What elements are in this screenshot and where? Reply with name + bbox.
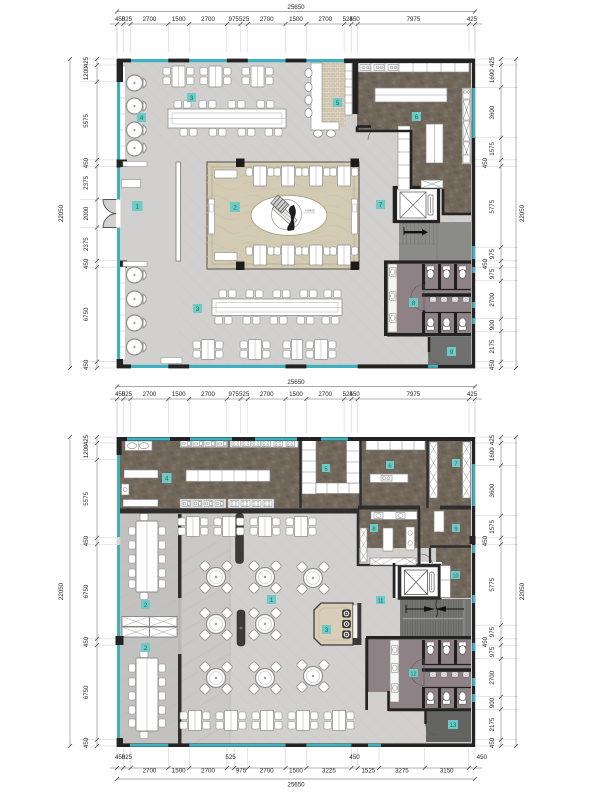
- svg-text:450: 450: [83, 359, 90, 370]
- svg-text:6750: 6750: [83, 307, 90, 321]
- svg-text:7: 7: [454, 461, 457, 467]
- svg-text:1500: 1500: [289, 16, 303, 23]
- svg-text:450: 450: [477, 754, 488, 761]
- svg-text:975: 975: [229, 16, 240, 23]
- svg-text:525: 525: [225, 754, 236, 761]
- svg-text:22050: 22050: [519, 582, 526, 600]
- svg-text:3: 3: [196, 306, 200, 313]
- svg-text:975: 975: [236, 768, 247, 775]
- svg-text:2: 2: [233, 204, 237, 211]
- svg-text:5: 5: [336, 100, 340, 107]
- svg-text:2700: 2700: [318, 16, 332, 23]
- svg-text:450: 450: [83, 157, 90, 168]
- svg-text:975: 975: [229, 391, 240, 398]
- svg-text:5575: 5575: [83, 113, 90, 127]
- svg-text:25650: 25650: [287, 379, 305, 386]
- svg-text:1200: 1200: [83, 444, 90, 458]
- svg-text:3600: 3600: [489, 483, 496, 497]
- svg-text:2700: 2700: [143, 391, 157, 398]
- svg-text:4: 4: [140, 115, 144, 122]
- svg-text:525: 525: [239, 391, 250, 398]
- svg-text:525: 525: [239, 16, 250, 23]
- svg-text:5775: 5775: [489, 199, 496, 213]
- svg-text:1: 1: [270, 597, 274, 604]
- svg-text:1200: 1200: [83, 66, 90, 80]
- svg-text:3600: 3600: [489, 105, 496, 119]
- svg-text:2700: 2700: [260, 16, 274, 23]
- svg-text:450: 450: [482, 535, 489, 546]
- svg-text:2700: 2700: [260, 391, 274, 398]
- svg-text:22050: 22050: [519, 204, 526, 222]
- svg-text:11: 11: [378, 598, 384, 604]
- svg-text:5575: 5575: [83, 491, 90, 505]
- svg-text:2375: 2375: [83, 175, 90, 189]
- svg-text:425: 425: [83, 56, 90, 67]
- svg-text:HS400: HS400: [305, 209, 315, 213]
- svg-text:5775: 5775: [489, 577, 496, 591]
- svg-text:2700: 2700: [260, 768, 274, 775]
- svg-text:1600: 1600: [489, 69, 496, 83]
- svg-text:1600: 1600: [489, 447, 496, 461]
- svg-text:450: 450: [482, 258, 489, 269]
- svg-text:1500: 1500: [289, 391, 303, 398]
- svg-text:1575: 1575: [489, 141, 496, 155]
- svg-text:1500: 1500: [172, 768, 186, 775]
- svg-text:9: 9: [450, 349, 454, 356]
- svg-text:2175: 2175: [489, 717, 496, 731]
- svg-text:6: 6: [388, 463, 391, 469]
- svg-text:975: 975: [489, 646, 496, 657]
- svg-text:8: 8: [412, 300, 416, 307]
- svg-text:5: 5: [324, 466, 327, 472]
- svg-text:6: 6: [415, 114, 419, 121]
- svg-text:450: 450: [482, 157, 489, 168]
- svg-text:6750: 6750: [83, 685, 90, 699]
- svg-text:425: 425: [467, 391, 478, 398]
- svg-text:1525: 1525: [361, 768, 375, 775]
- svg-text:4: 4: [165, 475, 169, 482]
- svg-text:2700: 2700: [489, 670, 496, 684]
- svg-text:2700: 2700: [489, 292, 496, 306]
- svg-text:1500: 1500: [172, 391, 186, 398]
- svg-text:425: 425: [489, 434, 496, 445]
- svg-text:22050: 22050: [58, 204, 65, 222]
- svg-text:7975: 7975: [406, 391, 420, 398]
- svg-text:900: 900: [489, 697, 496, 708]
- svg-text:22050: 22050: [58, 582, 65, 600]
- svg-text:3150: 3150: [440, 768, 454, 775]
- svg-text:3275: 3275: [395, 768, 409, 775]
- svg-text:450: 450: [349, 16, 360, 23]
- svg-text:2700: 2700: [201, 768, 215, 775]
- svg-text:450: 450: [482, 636, 489, 647]
- svg-text:525: 525: [122, 754, 133, 761]
- svg-text:1500: 1500: [172, 16, 186, 23]
- svg-text:1500: 1500: [289, 768, 303, 775]
- svg-text:450: 450: [83, 636, 90, 647]
- svg-text:450: 450: [83, 535, 90, 546]
- svg-text:450: 450: [489, 359, 496, 370]
- svg-text:25650: 25650: [287, 4, 305, 11]
- svg-text:450: 450: [83, 258, 90, 269]
- svg-text:425: 425: [489, 56, 496, 67]
- svg-text:7: 7: [379, 202, 383, 209]
- svg-text:975: 975: [489, 626, 496, 637]
- svg-text:3: 3: [190, 95, 194, 102]
- svg-text:425: 425: [467, 16, 478, 23]
- svg-text:450: 450: [349, 754, 360, 761]
- svg-text:900: 900: [489, 319, 496, 330]
- svg-text:3225: 3225: [322, 768, 336, 775]
- svg-text:25650: 25650: [287, 782, 305, 789]
- svg-text:975: 975: [489, 268, 496, 279]
- svg-text:7975: 7975: [406, 16, 420, 23]
- svg-text:8: 8: [372, 526, 375, 532]
- svg-text:525: 525: [122, 391, 133, 398]
- svg-text:9: 9: [454, 526, 457, 532]
- svg-text:13: 13: [450, 723, 457, 729]
- svg-text:2700: 2700: [318, 391, 332, 398]
- svg-text:525: 525: [122, 16, 133, 23]
- svg-text:975: 975: [489, 248, 496, 259]
- svg-text:450: 450: [489, 737, 496, 748]
- svg-text:10: 10: [452, 573, 458, 579]
- svg-text:2700: 2700: [201, 16, 215, 23]
- svg-text:425: 425: [83, 434, 90, 445]
- svg-text:2700: 2700: [143, 16, 157, 23]
- svg-text:12: 12: [410, 671, 416, 677]
- svg-text:3: 3: [325, 627, 329, 634]
- svg-text:450: 450: [349, 391, 360, 398]
- svg-text:1: 1: [135, 203, 139, 210]
- svg-text:2000: 2000: [83, 206, 90, 220]
- svg-text:1575: 1575: [489, 519, 496, 533]
- svg-text:2700: 2700: [201, 391, 215, 398]
- svg-text:2700: 2700: [143, 768, 157, 775]
- svg-text:6750: 6750: [83, 584, 90, 598]
- svg-text:450: 450: [83, 737, 90, 748]
- svg-text:2375: 2375: [83, 237, 90, 251]
- svg-text:2175: 2175: [489, 339, 496, 353]
